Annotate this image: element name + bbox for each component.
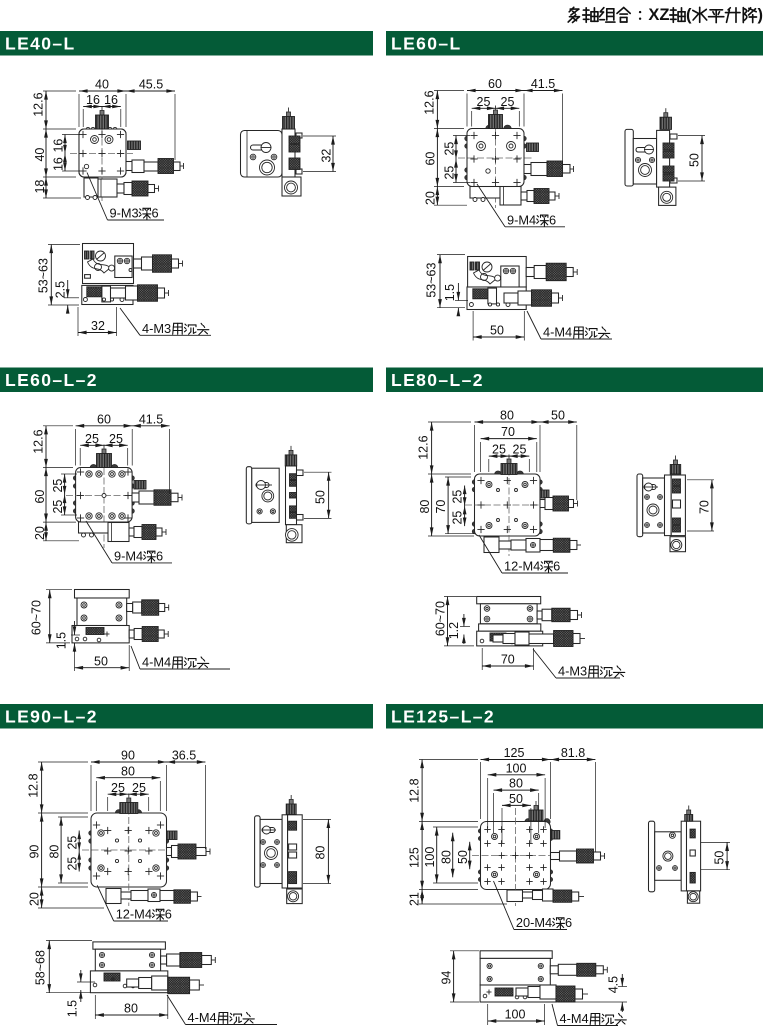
svg-text:6: 6: [152, 206, 159, 221]
svg-text:12-M4: 12-M4: [504, 559, 540, 574]
svg-text:90: 90: [28, 845, 42, 859]
svg-text:81.8: 81.8: [561, 746, 585, 760]
svg-text:80: 80: [314, 846, 328, 860]
svg-text:125: 125: [504, 746, 525, 760]
svg-text:45.5: 45.5: [139, 78, 163, 92]
svg-text:6: 6: [549, 212, 556, 227]
svg-text:4-M4: 4-M4: [543, 325, 572, 340]
svg-text:25: 25: [132, 781, 146, 795]
svg-text:58~68: 58~68: [34, 950, 48, 985]
svg-text:(: (: [686, 6, 692, 24]
svg-text:20: 20: [28, 892, 42, 906]
svg-text:40: 40: [33, 148, 47, 162]
svg-text:12.6: 12.6: [417, 435, 431, 459]
svg-text:25: 25: [66, 836, 80, 850]
svg-text:1.5: 1.5: [443, 284, 457, 301]
svg-text:90: 90: [121, 749, 135, 763]
svg-text:25: 25: [85, 432, 99, 446]
svg-text:53~63: 53~63: [37, 258, 51, 293]
svg-text:16: 16: [52, 157, 66, 171]
svg-text:20: 20: [424, 191, 438, 205]
svg-text:25: 25: [501, 95, 515, 109]
svg-text:25: 25: [513, 443, 527, 457]
svg-text:6: 6: [565, 915, 572, 930]
svg-text:60~70: 60~70: [434, 601, 448, 636]
svg-text:LE60–L–2: LE60–L–2: [5, 370, 98, 390]
svg-text:4-M3: 4-M3: [558, 664, 587, 679]
svg-text:70: 70: [698, 500, 712, 514]
svg-text:80: 80: [418, 500, 432, 514]
svg-text:41.5: 41.5: [139, 412, 163, 426]
svg-text:LE60–L: LE60–L: [391, 34, 462, 54]
svg-text:25: 25: [66, 857, 80, 871]
svg-text:41.5: 41.5: [531, 77, 555, 91]
svg-text:12.8: 12.8: [408, 778, 422, 802]
svg-text:94: 94: [440, 971, 454, 985]
svg-text:25: 25: [492, 443, 506, 457]
svg-text:21: 21: [408, 892, 422, 906]
svg-text:100: 100: [505, 1008, 526, 1022]
svg-text:20-M4: 20-M4: [516, 915, 552, 930]
svg-text:LE80–L–2: LE80–L–2: [391, 370, 484, 390]
svg-text:80: 80: [124, 1002, 138, 1016]
svg-text:25: 25: [451, 490, 465, 504]
svg-text:9-M4: 9-M4: [507, 212, 536, 227]
svg-text:6: 6: [553, 559, 560, 574]
svg-text:60: 60: [488, 77, 502, 91]
svg-text:18: 18: [33, 180, 47, 194]
svg-text:60: 60: [97, 412, 111, 426]
svg-text:60: 60: [424, 152, 438, 166]
svg-text:4-M4: 4-M4: [188, 1010, 217, 1025]
svg-text:4-M4: 4-M4: [560, 1011, 589, 1026]
svg-text:LE40–L: LE40–L: [5, 34, 76, 54]
svg-text:40: 40: [95, 78, 109, 92]
svg-text:50: 50: [490, 324, 504, 338]
svg-text:2.5: 2.5: [54, 281, 68, 298]
svg-text:25: 25: [451, 511, 465, 525]
svg-text:80: 80: [48, 845, 62, 859]
svg-text:1.5: 1.5: [55, 632, 69, 649]
svg-text:25: 25: [111, 781, 125, 795]
svg-text:80: 80: [121, 764, 135, 778]
svg-text:12-M4: 12-M4: [116, 907, 152, 922]
svg-text:36.5: 36.5: [172, 749, 196, 763]
svg-text:50: 50: [456, 850, 470, 864]
svg-text:25: 25: [443, 166, 457, 180]
svg-text:1.2: 1.2: [447, 622, 461, 639]
svg-text:70: 70: [434, 500, 448, 514]
svg-text:25: 25: [477, 95, 491, 109]
svg-text:50: 50: [314, 490, 328, 504]
svg-text:70: 70: [501, 653, 515, 667]
svg-text:25: 25: [51, 500, 65, 514]
svg-text:50: 50: [509, 792, 523, 806]
svg-text:70: 70: [501, 425, 515, 439]
svg-text:32: 32: [320, 149, 334, 163]
svg-text:12.6: 12.6: [423, 90, 437, 114]
svg-text:12.6: 12.6: [32, 429, 46, 453]
svg-text:50: 50: [713, 851, 727, 865]
svg-text:50: 50: [688, 153, 702, 167]
svg-text:50: 50: [551, 409, 565, 423]
svg-text:80: 80: [440, 850, 454, 864]
svg-text:XZ: XZ: [648, 6, 669, 24]
svg-text:60: 60: [33, 490, 47, 504]
svg-text:32: 32: [91, 319, 105, 333]
svg-text:25: 25: [109, 432, 123, 446]
svg-text:25: 25: [51, 479, 65, 493]
svg-text:LE125–L–2: LE125–L–2: [391, 707, 495, 727]
svg-text:6: 6: [165, 907, 172, 922]
svg-text:LE90–L–2: LE90–L–2: [5, 707, 98, 727]
svg-text:100: 100: [506, 761, 527, 775]
svg-text:4-M4: 4-M4: [142, 655, 171, 670]
svg-text:80: 80: [509, 777, 523, 791]
svg-text:25: 25: [443, 142, 457, 156]
svg-text:9-M3: 9-M3: [110, 206, 139, 221]
svg-text:20: 20: [33, 526, 47, 540]
svg-text:12.8: 12.8: [27, 773, 41, 797]
svg-text:4-M3: 4-M3: [142, 321, 171, 336]
svg-text:16: 16: [104, 93, 118, 107]
svg-text:125: 125: [408, 847, 422, 868]
svg-text:80: 80: [500, 409, 514, 423]
svg-text:6: 6: [156, 548, 163, 563]
svg-text:9-M4: 9-M4: [114, 548, 143, 563]
svg-text:16: 16: [52, 139, 66, 153]
svg-text:50: 50: [94, 654, 108, 668]
svg-text:12.6: 12.6: [32, 92, 46, 116]
svg-text:): ): [758, 6, 764, 24]
svg-text:60~70: 60~70: [30, 600, 44, 635]
svg-text:1.5: 1.5: [66, 1000, 80, 1017]
svg-text:16: 16: [86, 93, 100, 107]
svg-text:4.5: 4.5: [607, 976, 621, 993]
svg-text:53~63: 53~63: [425, 262, 439, 297]
svg-text:100: 100: [423, 847, 437, 868]
